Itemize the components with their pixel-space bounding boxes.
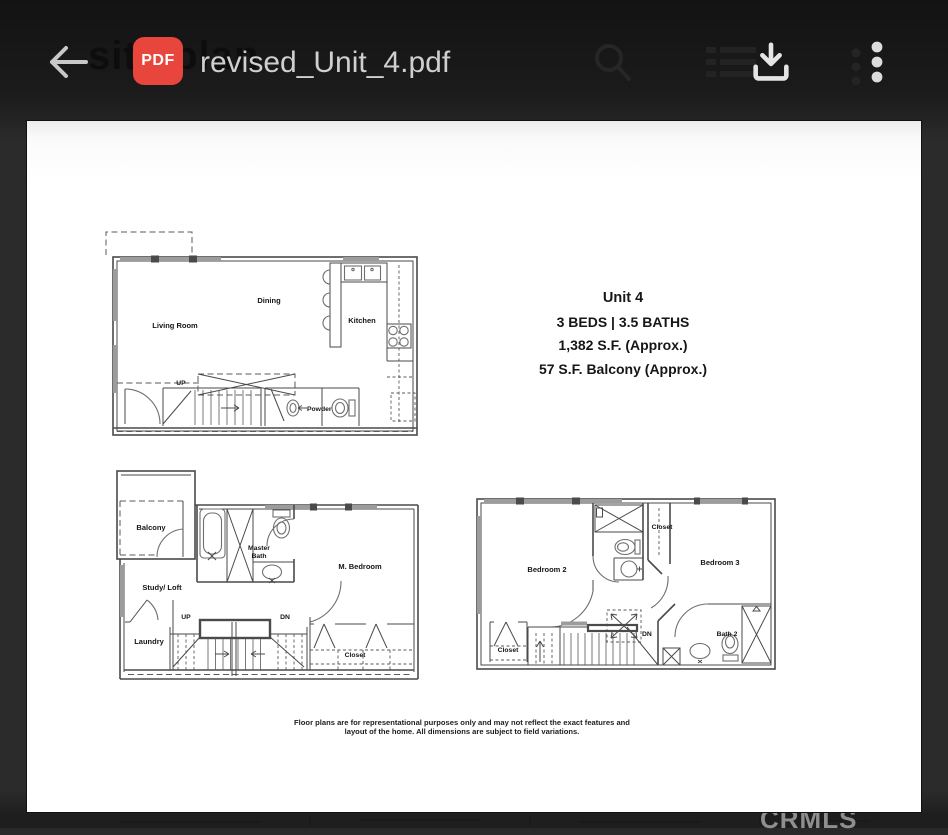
disclaimer: Floor plans are for representational pur… [262,718,662,736]
room-label-mbedroom: M. Bedroom [338,562,382,571]
toilet [273,510,290,538]
unit-beds-baths: 3 BEDS | 3.5 BATHS [473,311,773,335]
floor-plan-level-1: Living Room Dining Kitchen UP Powder [103,225,420,440]
room-label-master-bath: Bath [251,553,266,560]
room-label-bedroom2: Bedroom 2 [527,565,566,574]
chase-box [663,648,680,665]
disclaimer-line2: layout of the home. All dimensions are s… [262,727,662,736]
bedroom3-door-arc [651,576,668,608]
room-label-study: Study/ Loft [142,583,182,592]
shower [742,606,771,663]
room-label-dining: Dining [257,296,281,305]
closet [310,617,414,670]
room-label-closet-top: Closet [652,524,674,531]
stair-label-dn: DN [642,631,652,638]
back-arrow-icon[interactable] [46,44,90,80]
balcony-dashed-outline [106,232,192,255]
toilet [349,400,355,416]
stair-label-up: UP [176,380,186,387]
pdf-file-icon: PDF [133,37,183,85]
room-label-laundry: Laundry [134,637,164,646]
kitchen-island-stools [323,263,341,347]
room-label-master: Master [248,545,270,552]
stair-label-up: UP [181,614,191,621]
app-bar: site plan PDF revised_Unit_4.pdf [0,0,948,100]
entry-door-arc [125,389,160,424]
unit-balcony-sqft: 57 S.F. Balcony (Approx.) [473,358,773,382]
laundry-room [125,600,173,670]
master-bath [197,505,294,583]
sink [690,644,710,664]
disclaimer-line1: Floor plans are for representational pur… [262,718,662,727]
document-title: revised_Unit_4.pdf [200,46,450,80]
unit-summary: Unit 4 3 BEDS | 3.5 BATHS 1,382 S.F. (Ap… [473,287,773,381]
stair-label-dn: DN [280,614,290,621]
stairs [170,620,307,676]
ghost-search-icon [590,40,636,86]
toilet [722,635,738,662]
room-label-balcony: Balcony [136,523,166,532]
unit-sqft: 1,382 S.F. (Approx.) [473,334,773,358]
balcony-outline [117,471,195,559]
room-label-closet-bottom: Closet [498,647,520,654]
closet-corridor [648,503,670,574]
unit-name: Unit 4 [473,287,773,311]
ghost-overflow-icon [850,48,862,86]
toilet [615,540,640,555]
floor-plan-level-3: Bedroom 2 Closet Bedroom 3 DN Bath 2 Clo… [474,494,778,674]
room-label-bath2: Bath 2 [717,631,738,638]
stairs [528,625,658,665]
download-icon[interactable] [748,38,794,86]
bedroom-door-arc [310,581,341,622]
bathtub [200,509,225,560]
room-label-kitchen: Kitchen [348,316,376,325]
floor-plan-level-2: Balcony Master Bath M. Bedroom Study/ Lo… [113,467,423,689]
sink [621,561,642,577]
pdf-badge-label: PDF [141,52,175,70]
room-label-powder: Powder [307,406,332,413]
sink [263,565,282,583]
closet-bottom-left [490,622,527,662]
shower [595,505,643,532]
pdf-page[interactable]: Living Room Dining Kitchen UP Powder [27,121,921,812]
room-label-closet: Closet [345,652,367,659]
overflow-menu-icon[interactable] [869,41,885,83]
room-label-bedroom3: Bedroom 3 [700,558,739,567]
hall-bath [593,503,643,582]
kitchen-sink [341,263,387,282]
room-label-living: Living Room [152,321,198,330]
